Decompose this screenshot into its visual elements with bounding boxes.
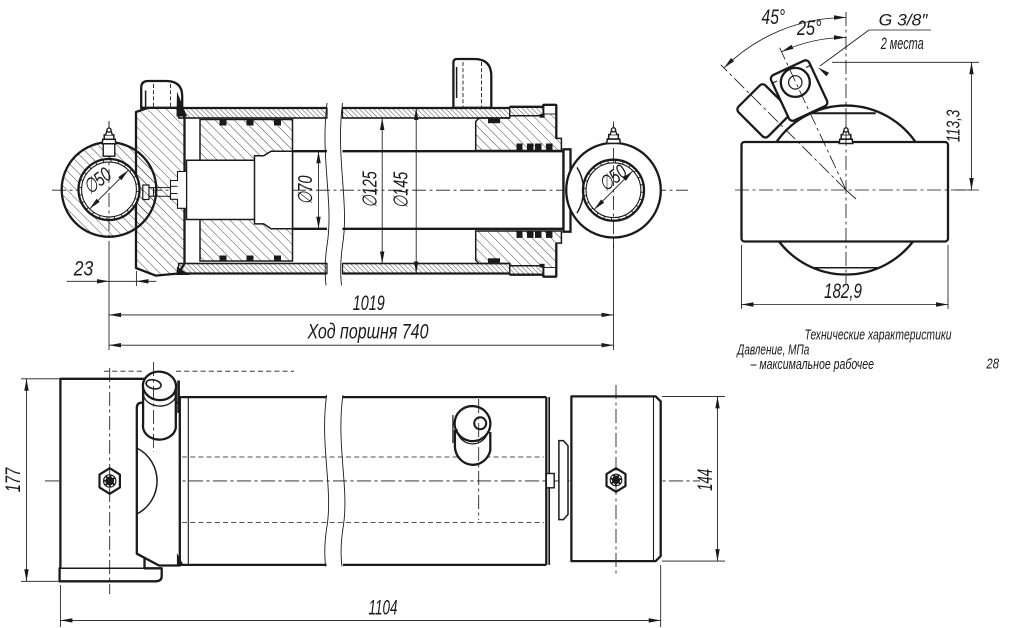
svg-text:∅70: ∅70 (295, 176, 317, 205)
svg-text:25°: 25° (796, 17, 821, 40)
svg-text:1019: 1019 (353, 292, 385, 315)
svg-text:182,9: 182,9 (824, 280, 862, 303)
svg-text:177: 177 (2, 467, 25, 492)
svg-text:45°: 45° (762, 6, 786, 29)
svg-text:– максимальное рабочее: – максимальное рабочее (750, 356, 874, 373)
svg-text:1104: 1104 (369, 597, 398, 620)
svg-text:Технические характеристики: Технические характеристики (805, 327, 952, 344)
svg-text:113,3: 113,3 (944, 110, 964, 143)
svg-text:Ход поршня 740: Ход поршня 740 (307, 321, 429, 344)
svg-text:∅125: ∅125 (360, 171, 382, 208)
svg-text:∅145: ∅145 (391, 171, 413, 208)
svg-text:2 места: 2 места (880, 34, 924, 53)
svg-text:28: 28 (986, 356, 1000, 373)
svg-text:144: 144 (694, 469, 717, 491)
svg-text:G 3/8″: G 3/8″ (879, 11, 929, 30)
svg-text:23: 23 (73, 258, 94, 281)
